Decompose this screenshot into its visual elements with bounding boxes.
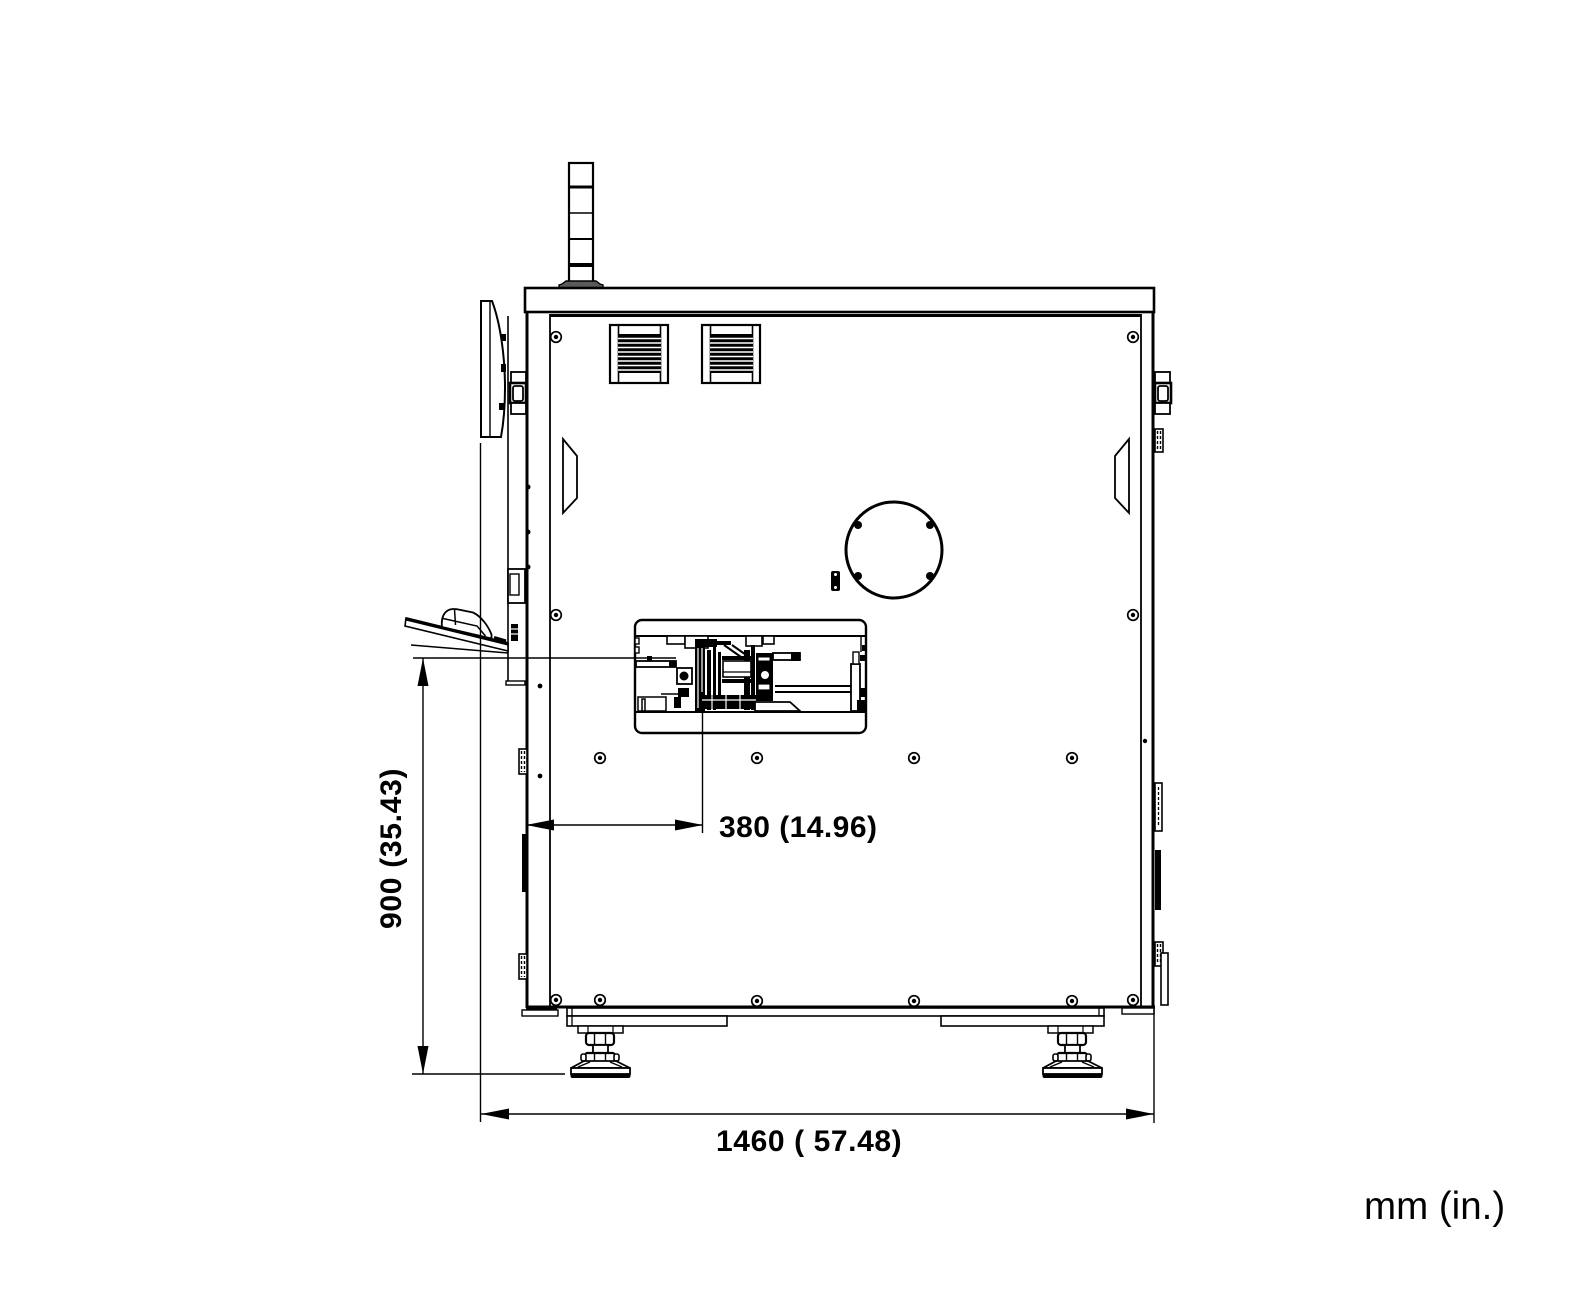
svg-text:900 (35.43): 900 (35.43) [375, 768, 408, 929]
svg-text:380 (14.96): 380 (14.96) [719, 811, 877, 844]
svg-text:mm (in.): mm (in.) [1364, 1185, 1505, 1228]
svg-text:1460 ( 57.48): 1460 ( 57.48) [716, 1125, 902, 1158]
